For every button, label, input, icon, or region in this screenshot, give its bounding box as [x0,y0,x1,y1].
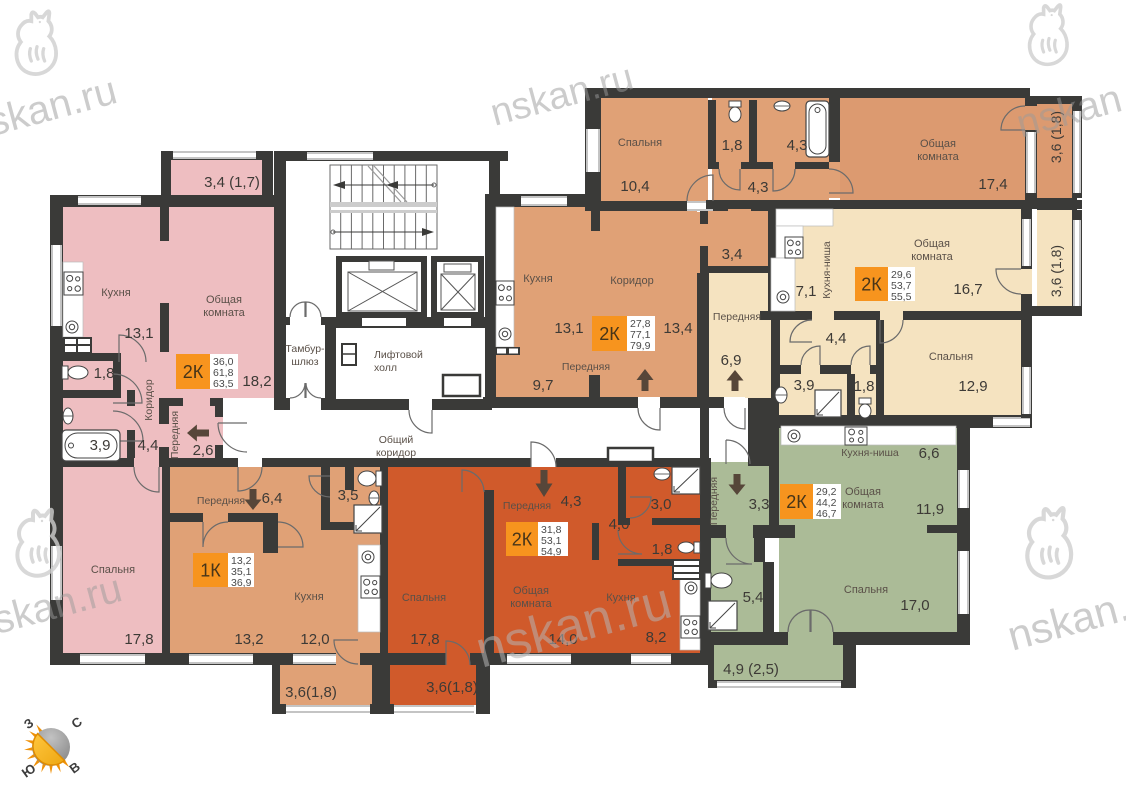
svg-text:Кухня: Кухня [101,287,130,299]
svg-text:12,9: 12,9 [958,378,987,395]
svg-text:4,3: 4,3 [748,179,769,196]
svg-text:79,9: 79,9 [630,340,651,352]
svg-text:7,1: 7,1 [796,283,817,300]
svg-text:63,5: 63,5 [213,378,234,390]
svg-text:Передняя: Передняя [503,500,551,512]
svg-text:2К: 2К [512,530,533,550]
svg-text:6,4: 6,4 [262,490,283,507]
svg-text:4,4: 4,4 [138,437,159,454]
svg-text:Лифтовой: Лифтовой [374,349,423,361]
svg-text:Передняя: Передняя [562,361,610,373]
svg-text:3,4 (1,7): 3,4 (1,7) [204,174,260,191]
svg-text:17,0: 17,0 [900,597,929,614]
svg-text:2К: 2К [861,275,882,295]
svg-text:4,0: 4,0 [609,516,630,533]
svg-text:46,7: 46,7 [816,508,837,520]
svg-text:2,6: 2,6 [193,442,214,459]
svg-text:Передняя: Передняя [708,477,720,525]
svg-text:Передняя: Передняя [169,411,181,459]
svg-text:Общая: Общая [845,486,881,498]
svg-text:4,3: 4,3 [787,137,808,154]
svg-text:1,8: 1,8 [94,365,115,382]
svg-text:комната: комната [842,499,884,511]
svg-text:17,4: 17,4 [978,176,1007,193]
svg-text:Кухня-ниша: Кухня-ниша [841,447,899,459]
svg-text:13,2: 13,2 [234,631,263,648]
svg-text:Спальня: Спальня [844,584,888,596]
svg-text:36,9: 36,9 [231,577,252,589]
svg-text:комната: комната [911,251,953,263]
svg-text:Общая: Общая [920,138,956,150]
svg-text:3,9: 3,9 [794,377,815,394]
svg-text:3,0: 3,0 [651,496,672,513]
svg-text:Спальня: Спальня [402,592,446,604]
svg-text:3,6(1,8): 3,6(1,8) [426,679,478,696]
svg-text:18,2: 18,2 [242,373,271,390]
svg-text:коридор: коридор [376,447,416,459]
svg-text:1К: 1К [200,561,221,581]
svg-text:12,0: 12,0 [300,631,329,648]
svg-text:16,7: 16,7 [953,281,982,298]
svg-text:Общая: Общая [914,238,950,250]
svg-text:6,9: 6,9 [721,352,742,369]
svg-text:6,6: 6,6 [919,445,940,462]
svg-text:13,1: 13,1 [124,325,153,342]
svg-text:9,7: 9,7 [533,377,554,394]
svg-text:комната: комната [917,151,959,163]
svg-text:Коридор: Коридор [143,379,155,421]
svg-text:2К: 2К [786,492,807,512]
svg-text:54,9: 54,9 [541,546,562,558]
svg-text:2К: 2К [599,324,620,344]
svg-text:3,3: 3,3 [749,496,770,513]
svg-text:холл: холл [374,362,397,374]
svg-text:Передняя: Передняя [713,311,761,323]
svg-text:55,5: 55,5 [891,291,912,303]
svg-text:Коридор: Коридор [610,275,653,287]
svg-text:1,8: 1,8 [722,137,743,154]
svg-text:11,9: 11,9 [916,501,944,518]
svg-text:Кухня: Кухня [294,591,323,603]
svg-text:Передняя: Передняя [197,495,245,507]
svg-text:4,9 (2,5): 4,9 (2,5) [723,661,779,678]
svg-text:13,1: 13,1 [554,320,583,337]
svg-text:3,4: 3,4 [722,246,743,263]
svg-text:Спальня: Спальня [929,351,973,363]
svg-text:17,8: 17,8 [410,631,439,648]
svg-text:Спальня: Спальня [618,137,662,149]
svg-text:1,8: 1,8 [652,541,673,558]
svg-text:1,8: 1,8 [854,378,875,395]
svg-text:3,6(1,8): 3,6(1,8) [285,684,337,701]
svg-text:комната: комната [203,307,245,319]
svg-text:4,3: 4,3 [561,493,582,510]
svg-text:Общий: Общий [379,434,414,446]
svg-text:4,4: 4,4 [826,330,847,347]
svg-text:2К: 2К [183,362,204,382]
svg-text:3,9: 3,9 [90,437,111,454]
svg-text:Кухня: Кухня [523,273,552,285]
svg-text:5,4: 5,4 [743,589,764,606]
svg-text:Общая: Общая [513,585,549,597]
svg-text:Тамбур-: Тамбур- [285,343,325,355]
svg-text:Общая: Общая [206,294,242,306]
svg-text:3,5: 3,5 [338,487,359,504]
svg-text:13,4: 13,4 [663,320,692,337]
svg-text:10,4: 10,4 [620,178,649,195]
svg-text:3,6 (1,8): 3,6 (1,8) [1048,245,1064,297]
svg-text:Кухня-ниша: Кухня-ниша [821,241,833,299]
svg-text:17,8: 17,8 [124,631,153,648]
svg-text:шлюз: шлюз [291,356,318,368]
